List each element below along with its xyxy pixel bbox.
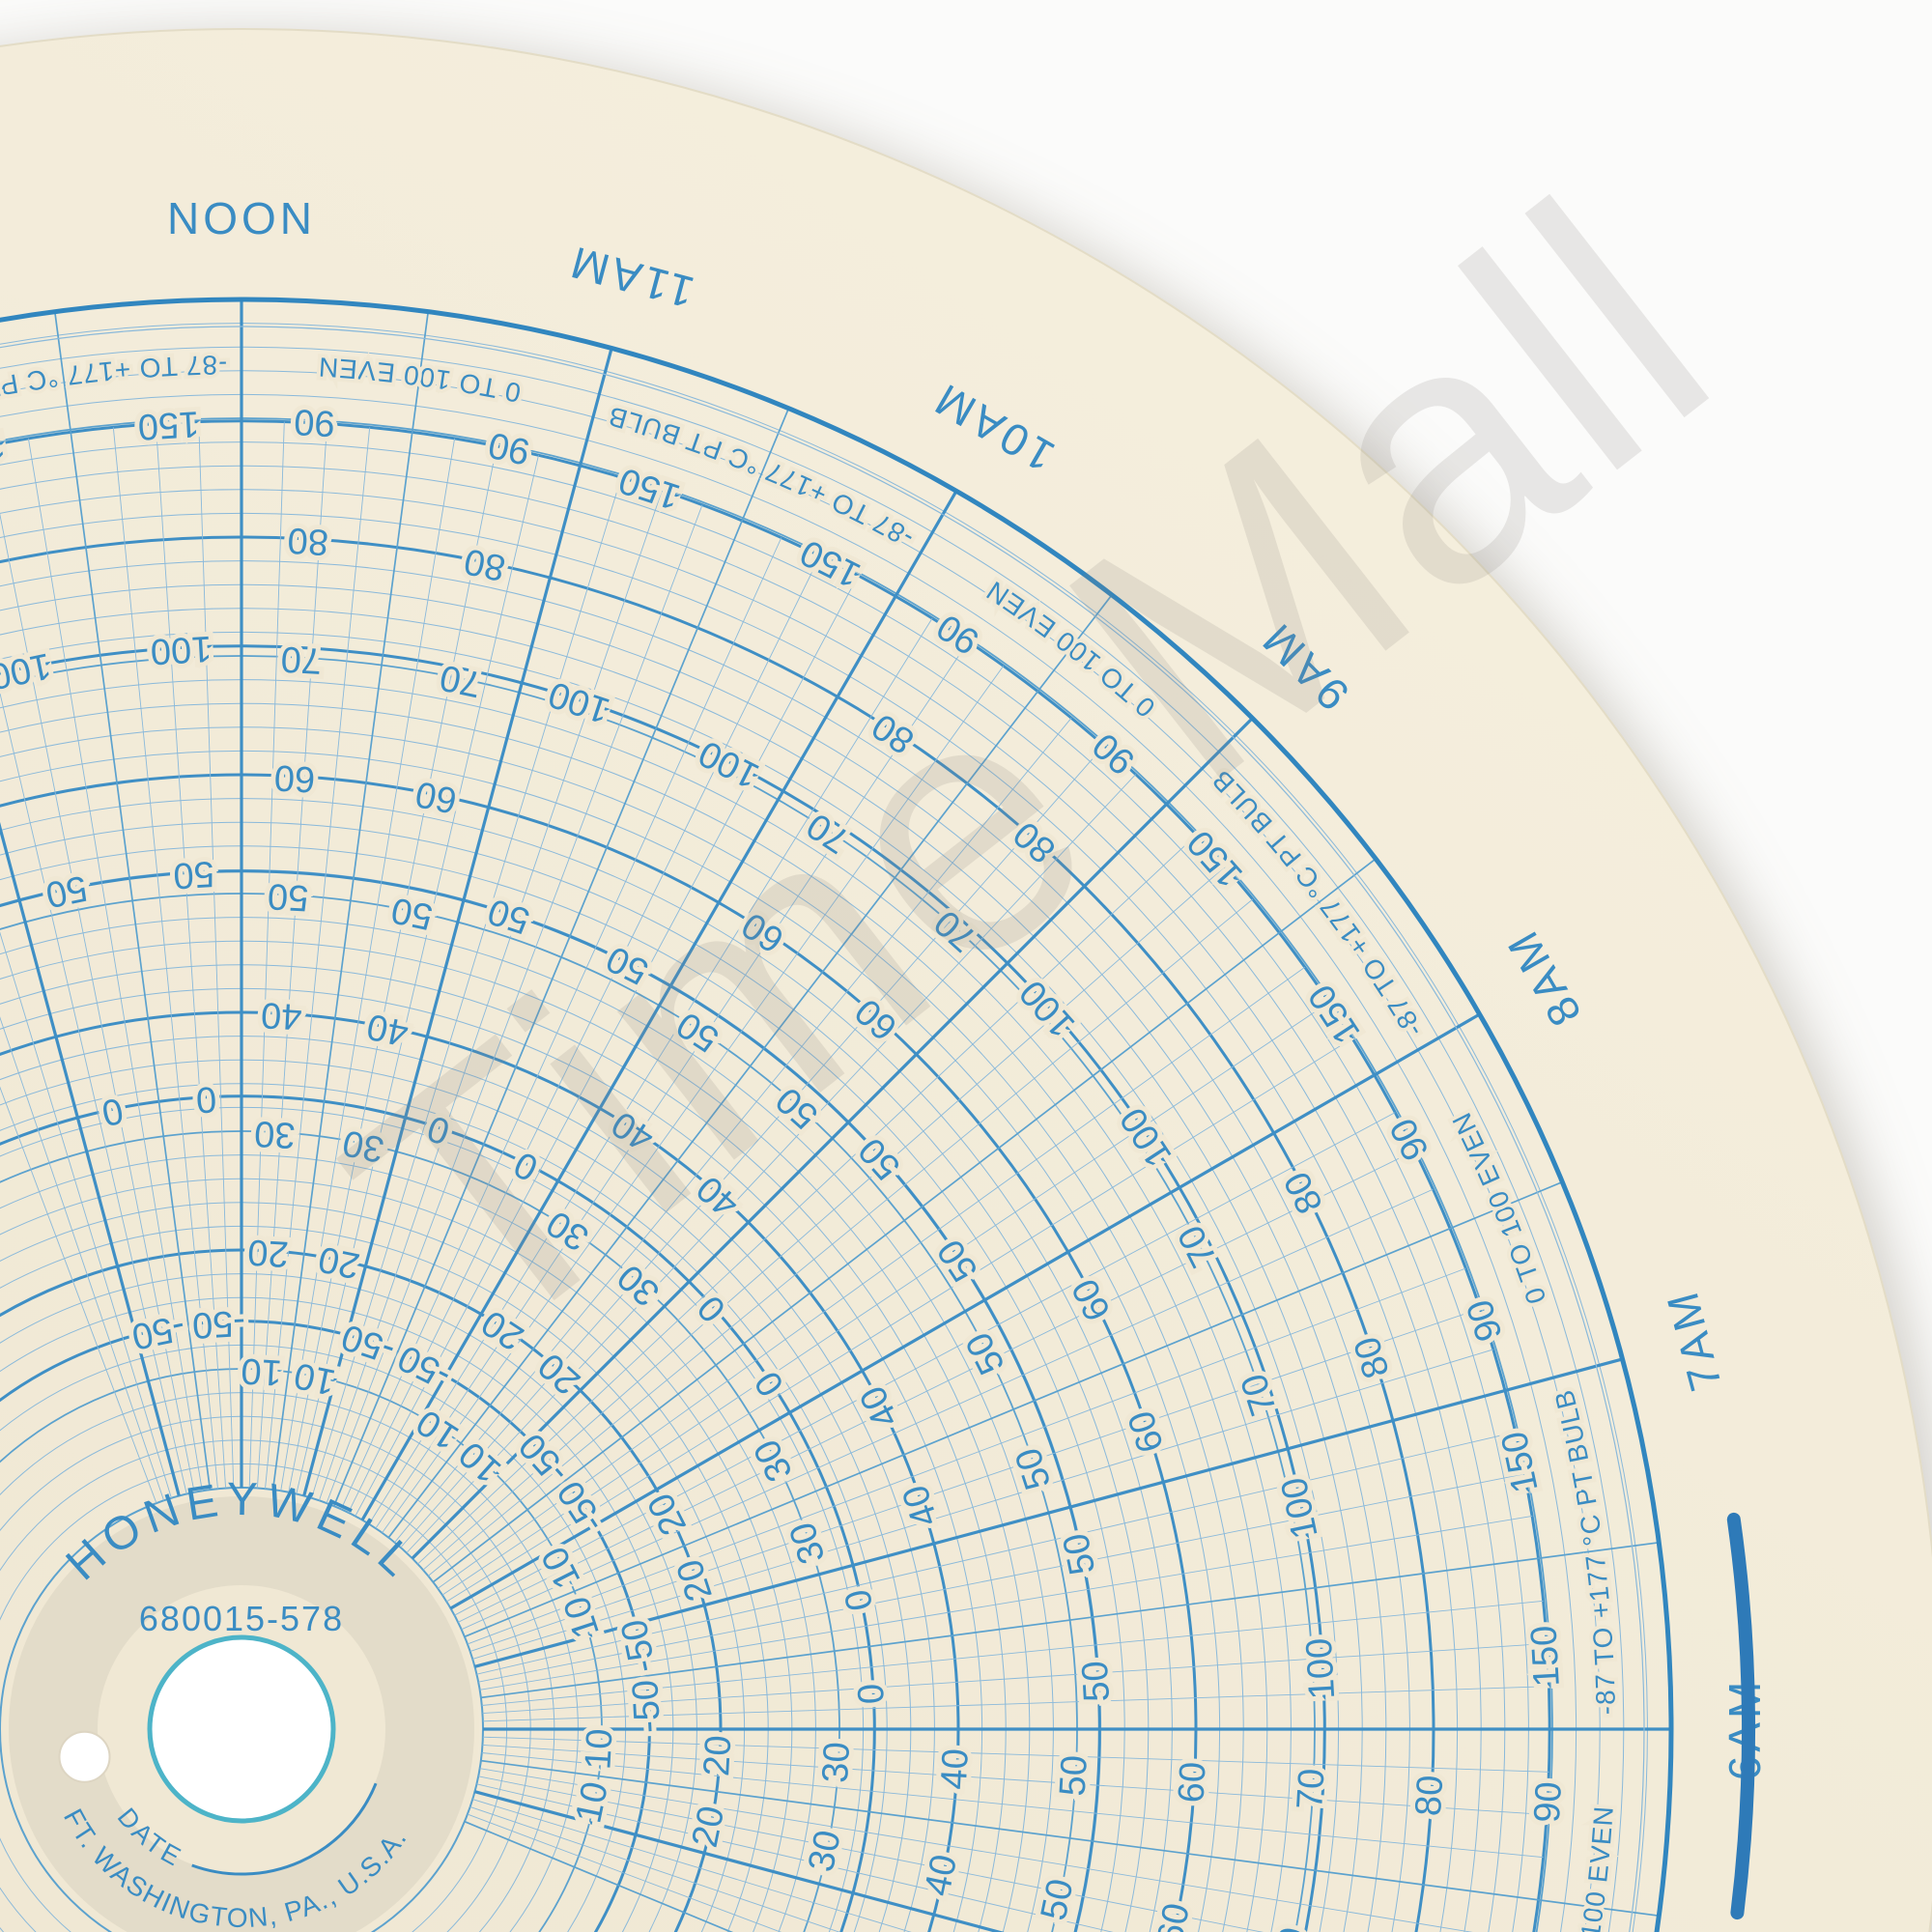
scale-number-label: 10 [291,1354,339,1403]
scale-number-label: 150 [137,403,201,446]
scale-number-label: 50 [1056,1530,1104,1578]
scale-number-label: 80 [1408,1775,1451,1818]
chart-svg: 150100500-50150100500-509080706050403020… [0,0,1932,1932]
scale-number-label: 80 [287,520,330,562]
scale-number-label: 70 [437,657,485,705]
scale-number-label: -50 [625,1679,668,1734]
scale-number-label: 0 [195,1078,217,1120]
scale-number-label: 40 [363,1006,412,1054]
scale-number-label: 50 [172,853,215,895]
scale-number-label: 40 [934,1747,977,1791]
scale-number-label: 50 [1034,1876,1082,1924]
scale-number-label: 70 [280,639,324,681]
scale-number-label: 20 [315,1238,363,1287]
scale-number-label: 30 [339,1122,387,1170]
scale-number-label: 90 [293,401,336,443]
scale-number-label: 50 [388,889,437,937]
center-hole [150,1637,333,1821]
scale-number-label: 70 [1290,1768,1332,1811]
scale-number-label: 20 [246,1232,290,1274]
scale-number-label: 90 [485,424,533,472]
scale-number-label: 100 [150,628,213,671]
punch-hole [60,1732,110,1782]
scale-number-label: -50 [191,1302,246,1346]
scale-number-label: 40 [260,994,303,1037]
scale-number-label: 40 [917,1851,965,1899]
part-number: 680015-578 [139,1599,344,1638]
scale-number-label: 50 [1075,1660,1118,1703]
scale-number-label: 10 [568,1778,616,1827]
scale-number-label: 10 [240,1350,283,1392]
scale-number-label: 20 [696,1734,739,1777]
scale-number-label: 50 [43,867,91,916]
scale-number-label: 60 [273,756,317,799]
scale-number-label: 0 [851,1683,893,1705]
scale-number-label: 30 [801,1827,849,1875]
scale-number-label: 10 [578,1727,620,1771]
scale-number-label: 60 [412,773,461,821]
scale-number-label: 80 [461,540,509,588]
scale-number-label: 30 [253,1113,297,1155]
hour-label: NOON [167,193,316,243]
scale-number-label: 150 [1523,1625,1567,1689]
hub: HONEYWELL680015-578DATEFT. WASHINGTON, P… [4,1474,479,1932]
product-photo: 150100500-50150100500-509080706050403020… [0,0,1932,1932]
scale-number-label: 30 [815,1741,858,1784]
scale-number-label: 20 [685,1803,733,1851]
circular-chart-paper: 150100500-50150100500-509080706050403020… [0,0,1932,1932]
scale-number-label: 100 [1299,1637,1343,1701]
scale-number-label: 60 [1171,1761,1213,1804]
scale-number-label: 90 [1527,1780,1570,1824]
scale-number-label: 50 [267,875,310,918]
scale-number-label: 50 [1053,1754,1095,1798]
